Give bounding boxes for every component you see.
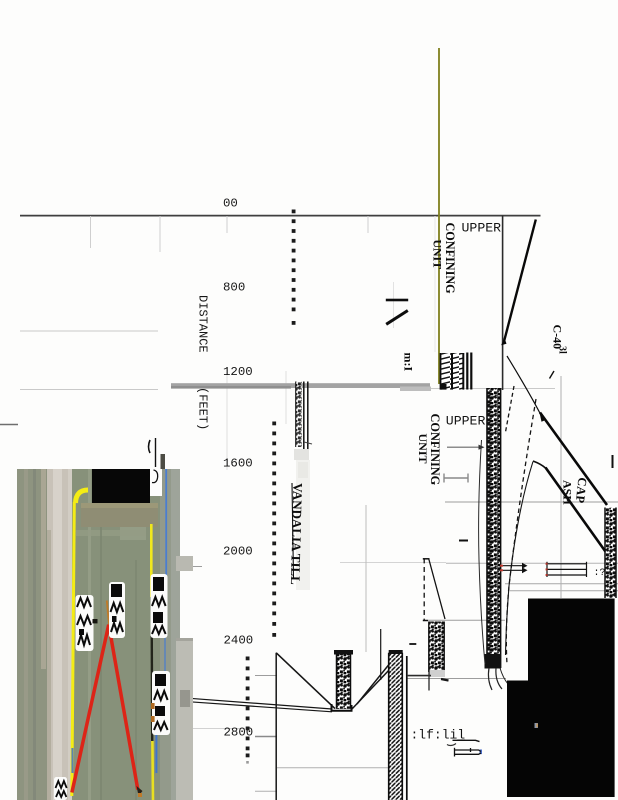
svg-text:1200: 1200 (223, 365, 253, 379)
svg-text:ASH: ASH (561, 480, 575, 505)
svg-text:1600: 1600 (223, 457, 253, 471)
svg-text:800: 800 (223, 281, 245, 295)
svg-text:CAP: CAP (573, 477, 590, 504)
svg-text:(FEET): (FEET) (196, 387, 210, 430)
svg-text:3l: 3l (557, 346, 568, 354)
svg-text:m:I: m:I (402, 353, 416, 372)
svg-text:VANDALIA TILL: VANDALIA TILL (288, 483, 306, 585)
svg-text:UPPER: UPPER (462, 221, 502, 236)
svg-text:2000: 2000 (223, 545, 253, 559)
svg-text:00: 00 (223, 197, 238, 211)
svg-text:UPPER: UPPER (446, 414, 486, 429)
svg-text::?: :? (594, 568, 606, 579)
svg-text:UNIT: UNIT (431, 240, 445, 270)
svg-text:UNIT: UNIT (416, 434, 430, 464)
svg-text:DISTANCE: DISTANCE (196, 295, 210, 353)
svg-text:2400: 2400 (224, 634, 254, 648)
